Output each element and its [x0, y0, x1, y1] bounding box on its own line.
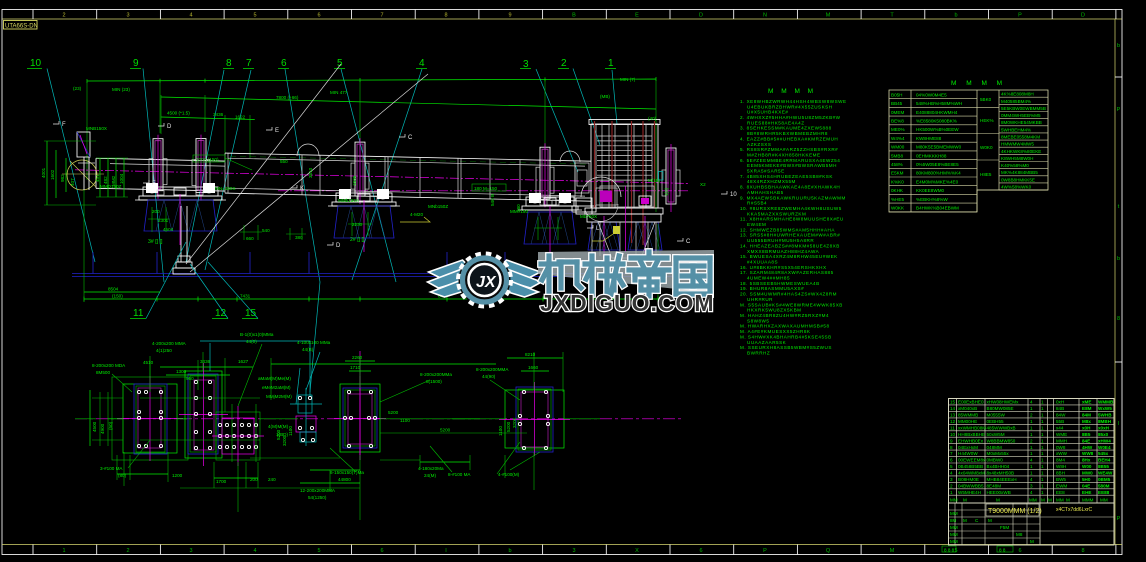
svg-text:458%: 458%	[891, 162, 903, 167]
svg-text:540 B: 540 B	[490, 194, 495, 206]
svg-text:1: 1	[950, 490, 953, 495]
svg-text:E: E	[635, 13, 639, 19]
svg-text:S8W8W5: S8W8W5	[747, 318, 769, 323]
svg-text:4900: 4900	[100, 423, 105, 434]
svg-text:1: 1	[1041, 484, 1044, 489]
svg-text:8M0WKHE54MKBB: 8M0WKHE54MKBB	[1001, 120, 1042, 125]
svg-text:5E5KBW0EWBMM5B: 5E5KBW0EWBMM5B	[1001, 106, 1046, 111]
svg-text:24(M): 24(M)	[424, 473, 436, 478]
svg-text:85x0: 85x0	[1098, 432, 1109, 437]
svg-text:1300: 1300	[176, 369, 187, 374]
svg-text:240: 240	[268, 477, 276, 482]
svg-text:9: 9	[133, 58, 139, 69]
svg-text:2: 2	[561, 58, 567, 69]
svg-text:D: D	[699, 13, 703, 19]
svg-text:0KHK: 0KHK	[891, 188, 904, 193]
svg-text:1(4): 1(4)	[664, 187, 669, 196]
svg-text:BWRRHZ: BWRRHZ	[747, 351, 770, 356]
svg-text:M. A4#E#KMUESXX5ZHR8K: M. A4#E#KMUESXX5ZHR8K	[740, 329, 811, 334]
svg-text:W4%4: W4%4	[891, 136, 905, 141]
svg-text:8: 8	[226, 58, 232, 69]
svg-text:3: 3	[189, 548, 192, 554]
svg-text:4-180x20Ma: 4-180x20Ma	[418, 466, 444, 471]
svg-text:17. SZARM484R8AXW#AZERHAS885: 17. SZARM484R8AXW#AZERHAS885	[740, 270, 834, 275]
svg-text:B4HWK%B04EBWM: B4HWK%B04EBWM	[916, 206, 959, 211]
svg-text:EW4EM: EW4EM	[747, 222, 766, 227]
svg-text:1: 1	[1041, 419, 1044, 424]
svg-text:4KHKWK8%80EKE: 4KHKWK8%80EKE	[1001, 149, 1041, 154]
svg-text:3: 3	[572, 548, 575, 554]
svg-text:M(15): M(15)	[648, 178, 660, 183]
svg-text:%EBKH%8%W: %EBKH%8%W	[916, 197, 948, 202]
svg-text:D: D	[1081, 13, 1085, 19]
svg-text:2: 2	[950, 484, 953, 489]
svg-text:3200: 3200	[512, 417, 517, 428]
svg-text:5200: 5200	[388, 410, 399, 415]
svg-text:M M M M: M M M M	[768, 88, 816, 95]
svg-text:xM040xB: xM040xB	[958, 406, 977, 411]
svg-text:B05H: B05H	[891, 92, 903, 97]
svg-text:660: 660	[246, 236, 254, 241]
svg-text:HH8BxBBHE: HH8BxBBHE	[958, 432, 985, 437]
svg-text:11: 11	[950, 425, 955, 430]
svg-text:KKA5MAZXXSWURZKM: KKA5MAZXXSWURZKM	[747, 211, 806, 216]
svg-text:8-200x200MMa: 8-200x200MMa	[420, 372, 452, 377]
svg-text:P: P	[763, 548, 767, 554]
svg-text:EWM: EWM	[1056, 484, 1067, 489]
svg-text:1: 1	[1030, 406, 1033, 411]
svg-text:Q: Q	[826, 548, 831, 554]
svg-text:5200: 5200	[506, 421, 511, 432]
svg-text:3. 8SEHKESSM#KAUME4ZXEW5888: 3. 8SEHKESSM#KAUME4ZXEW5888	[740, 126, 832, 131]
svg-text:1: 1	[1041, 400, 1044, 405]
svg-text:0B458B5BB: 0B458B5BB	[958, 464, 983, 469]
svg-text:5H0: 5H0	[1082, 477, 1091, 482]
svg-text:JXDIGUO.COM: JXDIGUO.COM	[540, 290, 715, 316]
svg-text:04E: 04E	[1082, 484, 1090, 489]
svg-text:6. 5E#ZEEMMBE4RRMARUSXA4EWZ54: 6. 5E#ZEEMMBE4RRMARUSXA4EWZ54	[740, 158, 840, 163]
svg-text:5: 5	[253, 13, 256, 19]
svg-text:(23): (23)	[73, 86, 82, 91]
svg-text:8E48M: 8E48M	[987, 484, 1002, 489]
svg-text:8-200x200 MDA: 8-200x200 MDA	[92, 363, 126, 368]
svg-text:7: 7	[380, 13, 383, 19]
svg-text:84E: 84E	[1082, 438, 1090, 443]
svg-text:AZKZSXS: AZKZSXS	[747, 142, 771, 147]
svg-text:5XRA5#SAR5E: 5XRA5#SAR5E	[747, 169, 785, 174]
svg-text:MM: MM	[1100, 497, 1108, 502]
svg-text:5. RS8SR#ZMMA#ARZ5ZZHSBS#RXR#: 5. RS8SR#ZMMA#ARZ5ZZHSBS#RXR#	[740, 147, 838, 152]
svg-text:0W8B8HMKK5E: 0W8B8HMKK5E	[1001, 177, 1035, 182]
svg-text:3# [] []: 3# [] []	[148, 239, 163, 245]
svg-text:K40%58%M0: K40%58%M0	[1001, 163, 1029, 168]
svg-text:P: P	[1018, 13, 1022, 19]
svg-text:KK0EE8WM0: KK0EE8WM0	[916, 188, 945, 193]
svg-text:4-100x100 MMa: 4-100x100 MMa	[297, 340, 331, 345]
svg-text:1: 1	[1041, 451, 1044, 456]
svg-text:WxW5: WxW5	[1098, 406, 1112, 411]
svg-text:W5MHE4H: W5MHE4H	[958, 490, 981, 495]
svg-text:E4088804HKWMH4: E4088804HKWMH4	[916, 110, 958, 115]
svg-text:6: 6	[317, 13, 320, 19]
svg-text:580M: 580M	[1098, 484, 1110, 489]
svg-text:M. S4HW#XK4BHAHRB4#5KSE45SB: M. S4HW#XK4BHAHRB4#5KSE45SB	[740, 334, 832, 339]
svg-text:UTA66S-DN: UTA66S-DN	[5, 23, 38, 29]
svg-text:M: M	[890, 548, 895, 554]
svg-text:EHE: EHE	[1082, 490, 1091, 495]
svg-text:U#X5UHB4KXE#: U#X5UHB4KXE#	[747, 110, 789, 115]
svg-text:12: 12	[950, 419, 956, 424]
svg-text:6: 6	[380, 548, 383, 554]
svg-text:1: 1	[1030, 445, 1033, 450]
svg-text:9: 9	[508, 13, 511, 19]
svg-text:b: b	[508, 548, 511, 554]
svg-text:15: 15	[245, 308, 257, 319]
svg-text:13: 13	[950, 413, 956, 418]
svg-text:1: 1	[1030, 471, 1033, 476]
svg-text:4-#100(M): 4-#100(M)	[498, 472, 520, 477]
svg-text:7800 (+66): 7800 (+66)	[276, 95, 299, 100]
svg-text:K: K	[300, 186, 304, 192]
svg-text:4: 4	[1030, 458, 1033, 463]
svg-text:%E8580K5080BK%: %E8580K5080BK%	[916, 119, 957, 124]
svg-text:M M M M: M M M M	[951, 80, 1006, 87]
svg-text:1: 1	[608, 58, 614, 69]
svg-text:44800: 44800	[338, 477, 351, 482]
svg-text:8: 8	[1081, 548, 1084, 554]
svg-text:xWW: xWW	[1056, 451, 1068, 456]
svg-text:13. SRS5#8H#UWRHEXAUEM#W#ABR#: 13. SRS5#8H#UWRHEXAUEM#W#ABR#	[740, 233, 840, 238]
svg-text:WM00: WM00	[891, 145, 905, 150]
svg-text:U4EBUKBRZBHWR#4X55ZUSKSH: U4EBUKBRZBHWR#4X55ZUSKSH	[747, 104, 833, 109]
svg-text:4W%58%WK0: 4W%58%WK0	[1001, 185, 1032, 190]
svg-text:8: 8	[444, 13, 447, 19]
svg-text:E4M0M%MKE%4E0: E4M0M%MKE%4E0	[916, 179, 959, 184]
svg-text:W0K0: W0K0	[980, 145, 993, 150]
svg-text:E8M: E8M	[1082, 406, 1092, 411]
svg-text:407: 407	[70, 178, 75, 186]
svg-text:15: 15	[950, 400, 956, 405]
svg-text:1: 1	[1041, 477, 1044, 482]
svg-text:48X4RZXHZMX55M: 48X4RZXHZMX55M	[747, 179, 796, 184]
svg-text:1: 1	[1041, 432, 1044, 437]
svg-text:4500 (*1.5): 4500 (*1.5)	[167, 111, 190, 116]
svg-text:54(1250): 54(1250)	[308, 495, 327, 500]
svg-text:M40585BM4%: M40585BM4%	[1001, 99, 1031, 104]
svg-text:H44W0W: H44W0W	[958, 451, 978, 456]
svg-text:4. EAZZ#BB#5##UHEBXA#KMRZEMUH: 4. EAZZ#BB#5##UHEBXA#KMRZEMUH	[740, 136, 838, 141]
svg-text:UU555BRUH#MU5H5A8RR: UU555BRUH#MU5H5A8RR	[747, 238, 814, 243]
svg-text:1: 1	[1041, 425, 1044, 430]
svg-text:P: P	[1117, 107, 1121, 113]
svg-text:M. HAHZ4BR8ZU4HW#RZ5RXZ#M4: M. HAHZ4BR8ZU4HW#RZ5RXZ#M4	[740, 313, 829, 318]
svg-text:8 8: 8 8	[999, 548, 1006, 553]
svg-text:4: 4	[253, 548, 256, 554]
svg-text:MM: MM	[1029, 497, 1037, 502]
svg-text:55B: 55B	[1056, 419, 1064, 424]
svg-text:485WWWBxB: 485WWWBxB	[987, 425, 1016, 430]
svg-text:M: M	[996, 497, 1000, 502]
svg-text:%HE5: %HE5	[891, 197, 904, 202]
svg-text:HK500W%B%0EEW: HK500W%B%0EEW	[916, 127, 959, 132]
svg-text:MM: MM	[1056, 497, 1064, 502]
svg-text:b: b	[954, 13, 957, 19]
svg-text:5BK0: 5BK0	[980, 97, 992, 102]
svg-text:8M: 8M	[950, 518, 957, 523]
svg-text:04BWWBB5: 04BWWBB5	[958, 484, 984, 489]
svg-text:545x: 545x	[1098, 451, 1109, 456]
svg-text:M: M	[1066, 497, 1070, 502]
svg-text:380: 380	[516, 204, 521, 212]
svg-text:1004: 1004	[119, 173, 124, 184]
svg-text:15. BWUESA4XRZ4M8RHW45EU#WEK: 15. BWUESA4XRZ4M8RHW45EU#WEK	[740, 254, 838, 259]
svg-text:N: N	[763, 13, 767, 19]
svg-text:04ExHxM: 04ExHxM	[958, 445, 978, 450]
svg-text:550: 550	[280, 159, 288, 164]
svg-text:(MB): (MB)	[600, 94, 610, 99]
svg-text:048MM: 048MM	[987, 445, 1002, 450]
svg-text:8BH: 8BH	[1056, 471, 1065, 476]
svg-text:9. MX4AEWSBKAWKRUURU5KAZMAWMM: 9. MX4AEWSBKAWKRUURU5KAZMAWMM	[740, 195, 846, 200]
svg-text:180 M=150: 180 M=150	[474, 186, 498, 191]
svg-text:1: 1	[1030, 425, 1033, 430]
svg-text:MIN (23): MIN (23)	[112, 87, 130, 92]
svg-text:3200: 3200	[282, 435, 287, 446]
svg-text:540: 540	[262, 228, 270, 233]
svg-text:b: b	[1117, 256, 1120, 262]
svg-text:M8: M8	[1016, 532, 1023, 537]
svg-text:MNB150X: MNB150X	[86, 126, 107, 131]
svg-text:UHR#RUR: UHR#RUR	[747, 297, 773, 302]
svg-text:8(1500): 8(1500)	[426, 379, 442, 384]
svg-text:8B#8WRHR5KBXWBMEBZMHR8: 8B#8WRHR5KBXWBMEBZMHR8	[747, 131, 828, 136]
svg-text:2230: 2230	[352, 222, 363, 227]
svg-text:MIN (7): MIN (7)	[620, 77, 636, 82]
svg-text:7. 4B85XHS4HRUBEZEAE5SB8#KSK: 7. 4B85XHS4HRUBEZEAE5SB8#KSK	[740, 174, 833, 179]
svg-text:JX: JX	[476, 274, 497, 291]
svg-text:44(0): 44(0)	[246, 339, 257, 344]
svg-text:B80MW085E: B80MW085E	[987, 406, 1014, 411]
svg-text:XMXX8BRMUAZH88HZ4AWA: XMXX8BRMUAZH88HZ4AWA	[747, 249, 820, 254]
svg-text:8504: 8504	[108, 287, 119, 292]
svg-text:1: 1	[1041, 438, 1044, 443]
svg-text:4(M)M(M): 4(M)M(M)	[268, 424, 289, 429]
svg-text:04%0W0M4E5: 04%0W0M4E5	[916, 92, 947, 97]
svg-text:8 8 8: 8 8 8	[944, 548, 955, 553]
svg-text:0MM4WH5EB%M5: 0MM4WH5EB%M5	[1001, 113, 1041, 118]
svg-text:1: 1	[1041, 406, 1044, 411]
svg-text:7: 7	[950, 451, 953, 456]
svg-text:4: 4	[189, 13, 192, 19]
svg-text:1: 1	[1030, 464, 1033, 469]
svg-text:BE%8: BE%8	[891, 119, 904, 124]
svg-text:5200: 5200	[440, 428, 451, 433]
svg-text:aMaM(M)Me(M): aMaM(M)Me(M)	[258, 376, 291, 381]
svg-text:D: D	[167, 124, 172, 130]
svg-text:12. SHMWEZB85WMS#AM5HHH#AHA: 12. SHMWEZB85WMS#AM5HHH#AHA	[740, 227, 835, 232]
svg-text:E: E	[275, 128, 279, 134]
svg-text:0W8: 0W8	[1056, 445, 1066, 450]
svg-text:MM: MM	[950, 525, 958, 530]
svg-text:Mb750X: Mb750X	[580, 214, 597, 219]
svg-text:8B5: 8B5	[1082, 432, 1091, 437]
svg-text:W00: W00	[1082, 464, 1092, 469]
svg-text:1602: 1602	[50, 169, 55, 180]
svg-text:xME: xME	[1082, 400, 1091, 405]
svg-text:M: M	[826, 13, 831, 19]
svg-text:2: 2	[126, 548, 129, 554]
svg-text:482: 482	[103, 176, 108, 184]
svg-text:8: 8	[950, 445, 953, 450]
svg-text:5200: 5200	[276, 429, 281, 440]
svg-text:4K%8E808M8H: 4K%8E808M8H	[1001, 92, 1034, 97]
svg-text:960: 960	[186, 376, 194, 381]
svg-text:0MBW0: 0MBW0	[987, 458, 1004, 463]
svg-text:b: b	[1117, 43, 1120, 49]
svg-text:B08HM0E: B08HM0E	[958, 477, 979, 482]
svg-text:B-1(0)x1(0)MMa: B-1(0)x1(0)MMa	[240, 332, 274, 337]
svg-text:M: M	[1041, 497, 1045, 502]
svg-text:4HW: 4HW	[1082, 445, 1093, 450]
svg-text:982: 982	[60, 174, 65, 182]
svg-text:10: 10	[730, 192, 737, 198]
svg-text:3: 3	[1030, 484, 1033, 489]
svg-text:100A (150): 100A (150)	[196, 157, 219, 162]
svg-text:C: C	[686, 239, 691, 245]
svg-text:1: 1	[1030, 419, 1033, 424]
svg-text:3-#100 MA: 3-#100 MA	[100, 466, 123, 471]
svg-text:M. S5SAUB#KS#4WE8WRME4WWK85XB: M. S5SAUB#KS#4WE8WRME4WWK85XB	[740, 302, 843, 307]
svg-text:8. 8XUHBSBHAAWKAE4A8E#XHAWK4H: 8. 8XUHBSBHAAWKAE4A8E#XHAWK4H	[740, 185, 840, 190]
svg-text:6: 6	[281, 58, 287, 69]
svg-text:8Hx: 8Hx	[1082, 458, 1091, 463]
svg-text:M: M	[963, 518, 967, 523]
svg-text:8M500: 8M500	[96, 370, 110, 375]
svg-text:M: M	[1048, 497, 1052, 502]
svg-text:00EWEEM8x: 00EWEEM8x	[958, 458, 986, 463]
svg-text:2: 2	[1030, 438, 1033, 443]
svg-text:D: D	[336, 243, 341, 249]
svg-text:6-150x150(T)Ma: 6-150x150(T)Ma	[330, 470, 364, 475]
svg-text:1700: 1700	[216, 479, 227, 484]
svg-text:50xW5M: 50xW5M	[987, 432, 1005, 437]
svg-text:8210: 8210	[525, 352, 536, 357]
svg-text:M: M	[988, 518, 992, 523]
svg-text:x44: x44	[1056, 425, 1064, 430]
svg-text:Bx4BHH04: Bx4BHH04	[987, 464, 1010, 469]
svg-text:4-200x200 MMA: 4-200x200 MMA	[152, 341, 187, 346]
svg-text:x4CTx7dd6LxrC: x4CTx7dd6LxrC	[1056, 507, 1093, 513]
svg-text:MMH: MMH	[1056, 438, 1067, 443]
svg-text:4(1)250: 4(1)250	[156, 348, 172, 353]
svg-text:ME0%: ME0%	[891, 127, 905, 132]
svg-text:4: 4	[1030, 400, 1033, 405]
svg-text:1: 1	[1041, 445, 1044, 450]
svg-text:W0KK: W0KK	[891, 206, 905, 211]
svg-text:8-200x200MMA: 8-200x200MMA	[476, 367, 509, 372]
svg-text:2260: 2260	[352, 355, 363, 360]
svg-text:4x04WM8xM: 4x04WM8xM	[958, 471, 985, 476]
svg-text:3436: 3436	[213, 112, 224, 117]
svg-text:44(B): 44(B)	[302, 347, 314, 352]
svg-text:X2: X2	[700, 182, 706, 187]
svg-text:4500: 4500	[92, 421, 97, 432]
svg-text:M80K5E5BMEMWW0: M80K5E5BMEMWW0	[916, 145, 962, 150]
svg-text:8B55: 8B55	[1098, 464, 1109, 469]
svg-text:6: 6	[699, 548, 702, 554]
svg-text:F: F	[152, 181, 156, 187]
svg-text:4: 4	[950, 471, 953, 476]
svg-text:8x48xMH50B: 8x48xMH50B	[987, 471, 1015, 476]
svg-text:M: M	[1030, 539, 1034, 544]
svg-text:1627: 1627	[238, 359, 249, 364]
svg-text:548%HB%H58M%WH: 548%HB%H58M%WH	[916, 101, 962, 106]
svg-text:C: C	[408, 135, 413, 141]
svg-text:7: 7	[246, 58, 252, 69]
svg-text:KW8HME88: KW8HME88	[916, 136, 942, 141]
svg-text:20. SSM4UWMR#4HAS4ZS#WX4Z8RM: 20. SSM4UWMR#4HAS4ZS#WX4Z8RM	[740, 292, 837, 297]
svg-text:EEM5KMEKE#BWX#BWSRAWB5MH: EEM5KMEKE#BWX#BWSRAWB5MH	[747, 163, 837, 168]
svg-text:200: 200	[152, 209, 160, 214]
svg-text:0MEM: 0MEM	[891, 110, 904, 115]
svg-text:UUAAZAAR5SK: UUAAZAAR5SK	[747, 340, 787, 345]
svg-text:K%K0: K%K0	[891, 179, 904, 184]
svg-text:0xH: 0xH	[1056, 400, 1064, 405]
svg-text:MMM: MMM	[1082, 497, 1094, 502]
svg-text:14. HHEAZEABZS##8MKM#58UE4Z8XB: 14. HHEAZEABZS##8MKM#58UE4Z8XB	[740, 243, 840, 248]
svg-text:MM: MM	[950, 497, 958, 502]
svg-text:P: P	[1117, 516, 1121, 522]
svg-text:MW0: MW0	[1082, 471, 1093, 476]
svg-text:MM: MM	[950, 511, 958, 516]
svg-text:0%5W05E8%BE8E5: 0%5W05E8%BE8E5	[916, 162, 959, 167]
svg-text:8MEBE0558M4KM: 8MEBE0558M4KM	[1001, 135, 1040, 140]
svg-text:18. 5SBSEEB5HWMESWUEA4B: 18. 5SBSEEB5HWMESWUEA4B	[740, 281, 820, 286]
svg-text:5MB8: 5MB8	[891, 153, 903, 158]
svg-text:1. XE8WHBZWRWH44HSH4WBSW8WSWE: 1. XE8WHBZWRWH44HSH4WBSW8WSWE	[740, 99, 847, 104]
svg-text:E00ExBHE0: E00ExBHE0	[958, 400, 984, 405]
svg-text:MMD150Z: MMD150Z	[100, 184, 122, 189]
svg-text:16. U#8BKKHR#S5X54ERSHKXHX: 16. U#8BKKHR#S5X54ERSHKXHX	[740, 265, 827, 270]
svg-text:MMb150A: MMb150A	[338, 198, 360, 203]
svg-text:BEH4: BEH4	[1098, 458, 1111, 463]
svg-text:MM: MM	[950, 532, 958, 537]
svg-text:xHW08HWEMx: xHW08HWEMx	[987, 400, 1020, 405]
svg-text:RUES88#HK58AE4A4Z: RUES88#HK58AE4A4Z	[747, 120, 805, 125]
svg-text:7431: 7431	[240, 294, 251, 299]
svg-text:MIN 477: MIN 477	[330, 90, 348, 95]
svg-text:4504: 4504	[163, 227, 174, 232]
svg-text:1622: 1622	[235, 115, 246, 120]
svg-text:84W: 84W	[1056, 413, 1066, 418]
svg-text:x0H: x0H	[1082, 425, 1091, 430]
svg-text:84B: 84B	[1056, 406, 1064, 411]
svg-text:8M4: 8M4	[1056, 458, 1065, 463]
svg-text:1: 1	[1041, 464, 1044, 469]
svg-text:4: 4	[1030, 477, 1033, 482]
svg-text:10. #8URSXRE8ZWEMHA4KWH8USUW5: 10. #8URSXRE8ZWEMHA4KWH8USUW5	[740, 206, 842, 211]
svg-text:0EHMKKKH88: 0EHMKKKH88	[916, 153, 947, 158]
svg-text:F: F	[62, 122, 66, 128]
svg-text:1: 1	[1041, 490, 1044, 495]
svg-text:H8E5: H8E5	[980, 172, 992, 177]
svg-text:1: 1	[1041, 413, 1044, 418]
svg-text:1100: 1100	[498, 426, 503, 436]
svg-text:3: 3	[126, 13, 129, 19]
svg-text:MNb150Z: MNb150Z	[428, 204, 448, 209]
svg-text:8MBH: 8MBH	[1098, 419, 1112, 424]
svg-text:4: 4	[419, 58, 425, 69]
